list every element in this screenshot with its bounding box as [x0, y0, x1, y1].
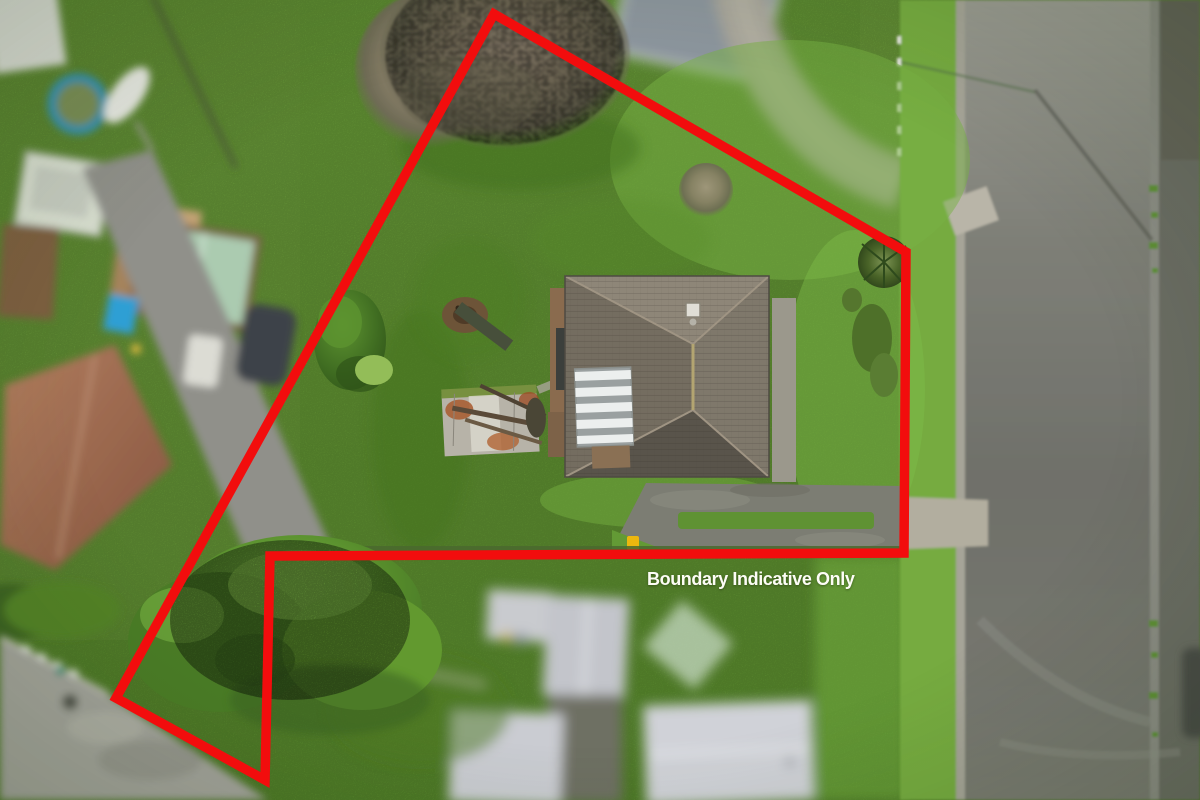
aerial-photo: Boundary Indicative Only [0, 0, 1200, 800]
boundary-annotation: Boundary Indicative Only [647, 569, 854, 590]
vignette [0, 0, 1200, 800]
